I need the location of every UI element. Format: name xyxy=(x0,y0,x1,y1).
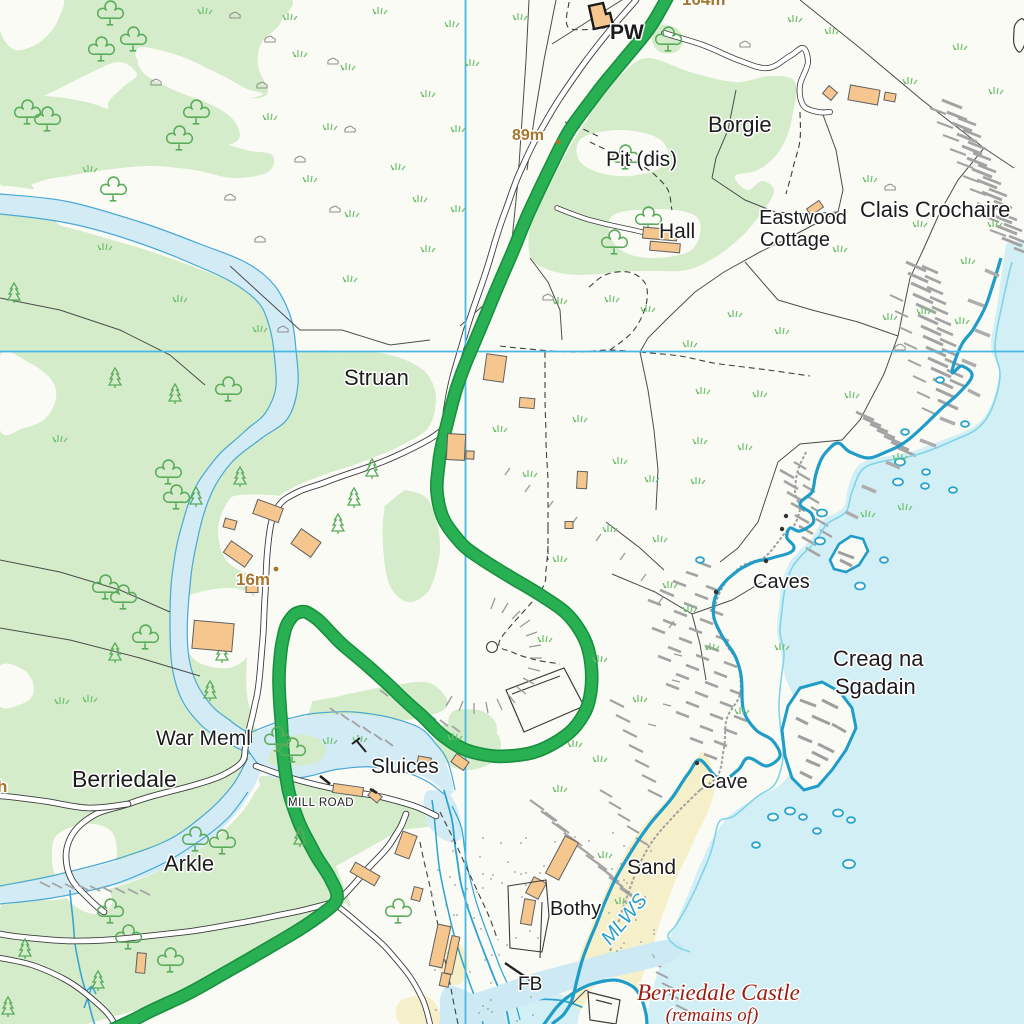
svg-text:16m: 16m xyxy=(236,570,270,589)
svg-text:Caves: Caves xyxy=(753,571,810,593)
svg-text:Struan: Struan xyxy=(344,365,409,390)
svg-text:Sluices: Sluices xyxy=(371,755,439,778)
svg-text:Arkle: Arkle xyxy=(164,851,214,876)
svg-text:Cottage: Cottage xyxy=(760,229,830,251)
svg-text:Sgadain: Sgadain xyxy=(835,674,916,699)
svg-text:Sand: Sand xyxy=(627,856,676,879)
svg-text:War Meml: War Meml xyxy=(156,727,251,750)
svg-text:Hall: Hall xyxy=(659,220,695,243)
svg-text:PW: PW xyxy=(610,21,644,44)
svg-text:MILL ROAD: MILL ROAD xyxy=(288,797,354,809)
svg-text:Creag na: Creag na xyxy=(833,646,924,671)
svg-text:Berriedale Castle: Berriedale Castle xyxy=(637,980,800,1005)
svg-text:h: h xyxy=(0,777,7,796)
svg-text:(remains of): (remains of) xyxy=(666,1005,759,1024)
svg-text:Clais Crochaire: Clais Crochaire xyxy=(860,197,1010,222)
svg-text:89m: 89m xyxy=(512,127,544,144)
svg-text:Pit (dis): Pit (dis) xyxy=(606,148,677,171)
svg-text:Bothy: Bothy xyxy=(550,898,601,920)
svg-text:Berriedale: Berriedale xyxy=(72,766,177,792)
svg-text:Borgie: Borgie xyxy=(708,112,772,137)
svg-text:104m: 104m xyxy=(682,0,725,9)
svg-text:FB: FB xyxy=(518,974,542,995)
svg-text:Eastwood: Eastwood xyxy=(759,207,847,229)
svg-text:Cave: Cave xyxy=(701,771,748,793)
